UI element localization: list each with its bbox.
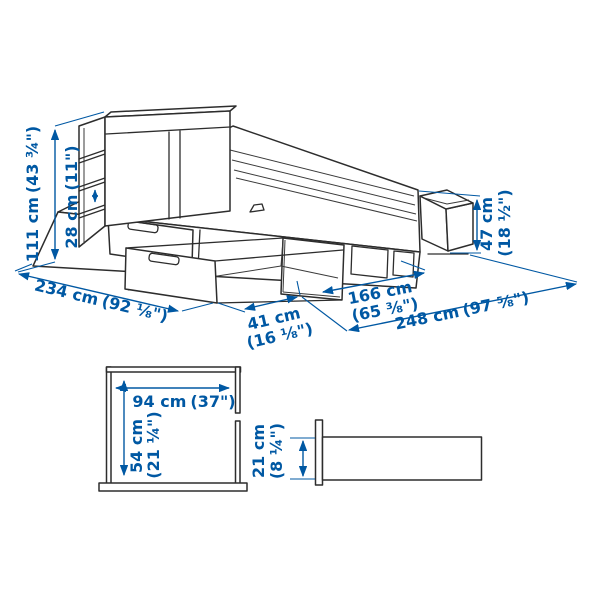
dimension-label: 47 cm: [477, 197, 496, 251]
dimension-label: 21 cm: [249, 424, 268, 478]
dimension-rail-height: 21 cm (8 ¼"): [249, 423, 315, 479]
dimension-label: (18 ½"): [495, 189, 514, 256]
dimension-label: 94 cm(37"): [132, 392, 235, 411]
dimension-label: 28 cm(11"): [62, 145, 81, 248]
drawer-back-wall: [107, 367, 241, 372]
dimension-label: 111 cm(43 ¾"): [23, 126, 42, 262]
dimension-label: (8 ¼"): [267, 423, 286, 479]
drawer-top-view: 94 cm(37") 54 cm (21 ¼"): [99, 367, 247, 491]
rail-end-plate: [316, 420, 323, 485]
dimension-drawer-width: 94 cm(37"): [116, 388, 236, 411]
bed-isometric-view: 111 cm(43 ¾") 28 cm(11") 47 cm (18 ½") 2…: [15, 106, 577, 352]
diagram-canvas: 111 cm(43 ¾") 28 cm(11") 47 cm (18 ½") 2…: [0, 0, 600, 600]
drawer-opening: [281, 238, 344, 300]
drawer-front-panel: [99, 483, 247, 491]
side-rail-section-view: 21 cm (8 ¼"): [249, 420, 482, 485]
drawer-right-wall: [236, 421, 241, 486]
far-side-open-drawer: [420, 190, 473, 254]
rail-panel: [323, 437, 482, 480]
dimension-label: (21 ¼"): [144, 411, 163, 478]
product-dimension-diagram: 111 cm(43 ¾") 28 cm(11") 47 cm (18 ½") 2…: [0, 0, 600, 600]
drawer-right-wall: [236, 367, 241, 413]
drawer-left-wall: [107, 367, 112, 486]
dimension-headboard-compartment: 28 cm(11"): [62, 145, 81, 248]
